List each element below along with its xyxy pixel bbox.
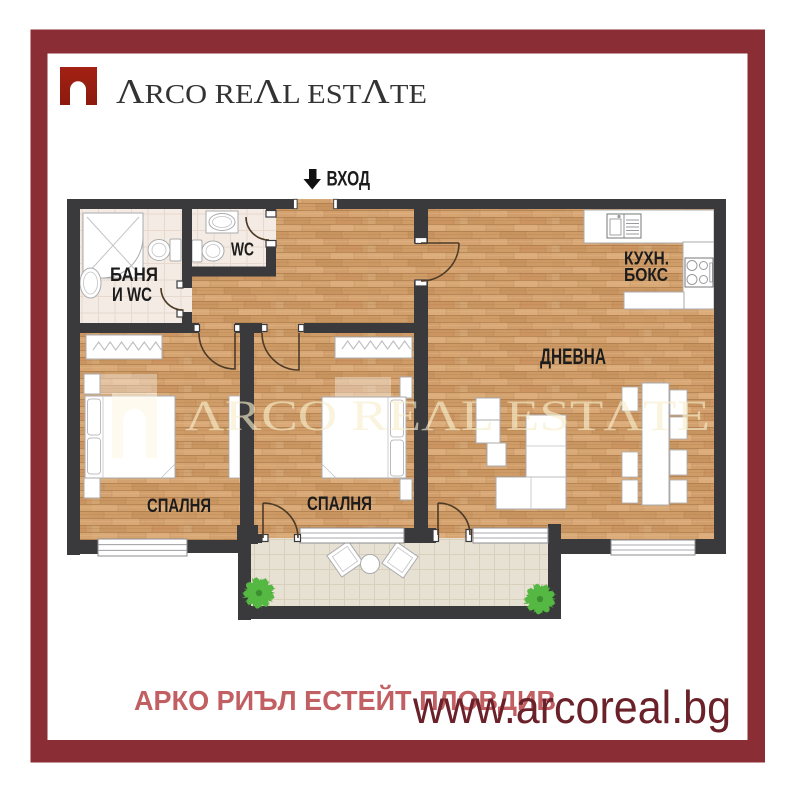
svg-text:БАНЯ: БАНЯ: [110, 264, 158, 286]
svg-text:ДНЕВНА: ДНЕВНА: [540, 344, 606, 369]
svg-text:И WC: И WC: [112, 284, 152, 306]
svg-text:www.arcoreal.bg: www.arcoreal.bg: [412, 681, 731, 733]
svg-text:ВХОД: ВХОД: [327, 166, 371, 190]
svg-text:ΛRCO REΛL ESTΛTE: ΛRCO REΛL ESTΛTE: [185, 393, 710, 440]
svg-text:СПАЛНЯ: СПАЛНЯ: [307, 493, 372, 515]
svg-text:WC: WC: [231, 240, 254, 260]
svg-text:СПАЛНЯ: СПАЛНЯ: [147, 495, 211, 517]
svg-text:БОКС: БОКС: [624, 264, 668, 285]
